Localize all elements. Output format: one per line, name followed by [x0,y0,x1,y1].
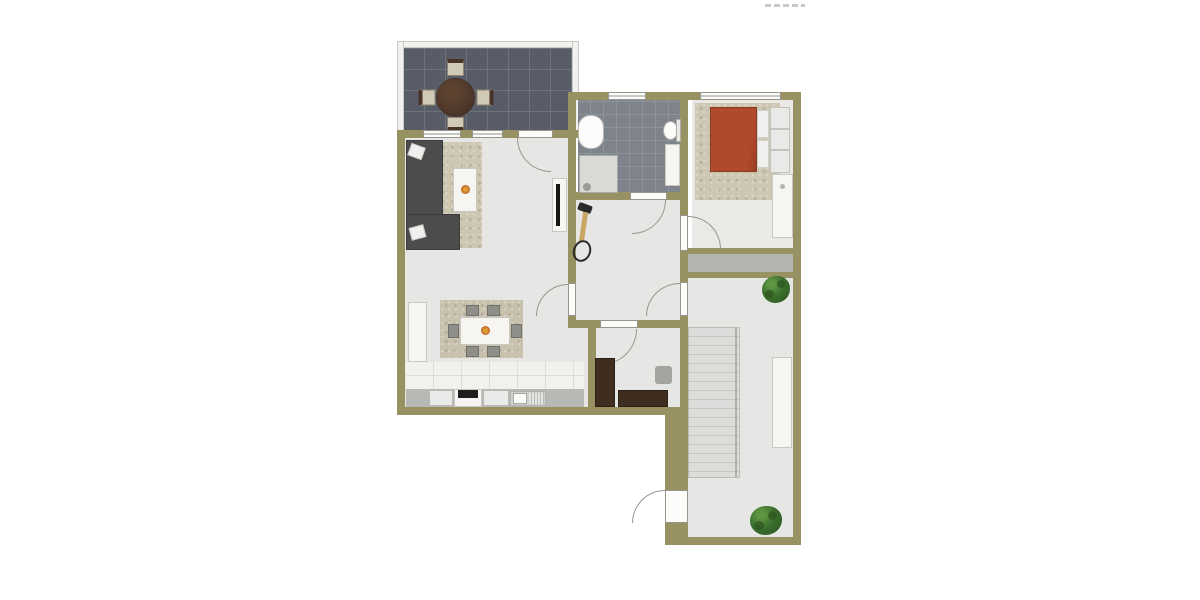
bedroom-door-frame [680,215,688,251]
kitchen-cabinet-front-1 [430,391,452,405]
study-sideboard [618,390,668,407]
wall-mid-vertical-c [680,316,688,415]
wall-stair-left-lower [665,523,688,537]
bicycle-frame [579,212,588,242]
staircase-rail [735,328,737,477]
cooktop-hob [458,390,478,398]
living-window-1 [423,130,461,138]
staircase [688,327,740,478]
study-wall-panel [655,366,672,384]
terrace-chair-bottom [447,117,464,131]
bed-pillow-2 [757,140,769,168]
terrace-chair-top [447,59,464,76]
kitchen-cabinet-front-2 [484,391,508,405]
wardrobe-knob [780,184,785,189]
bed-headboard [770,107,790,173]
hall-stair-door-frame [680,282,688,316]
shower-head-icon [583,183,591,191]
wall-left-outer [397,130,405,415]
toilet-tank [676,119,681,142]
watermark-text [765,4,805,7]
coffee-table-flowers [461,185,470,194]
sink-bowl [513,393,527,404]
bed-duvet [710,107,757,172]
wall-stair-left-upper [665,415,688,490]
terrace-chair-right [477,90,494,106]
study-door-frame [600,320,638,328]
bathroom-window [608,92,646,100]
sink-drainer [529,393,544,404]
bathroom-vanity [665,144,680,186]
fridge-cabinet [408,302,427,362]
wall-hall-study-left [568,320,600,328]
hall-radiator [772,357,792,448]
wall-bottom-outer [665,537,801,545]
bedroom-window [700,92,781,100]
study-cabinet-vertical [595,358,615,407]
bicycle-wheel [570,238,594,265]
terrace-railing-left [397,41,404,136]
dining-chair-3 [466,346,479,357]
living-window-2 [472,130,503,138]
floor-plan [0,0,1200,600]
wall-bottom-living [397,407,688,415]
wall-bath-bottom-left [568,192,630,200]
tv-icon [556,184,560,226]
dining-chair-2 [487,305,500,316]
terrace-table [436,78,475,117]
terrace-chair-left [419,90,436,106]
dining-chair-6 [511,324,522,338]
dining-chair-5 [448,324,459,338]
dining-table-flowers [481,326,490,335]
kitchen-tile-strip [406,362,584,390]
storage-strip-floor [688,254,793,272]
entry-door-frame [665,490,688,523]
dining-chair-1 [466,305,479,316]
living-hall-door-frame [568,283,576,316]
bicycle-icon [570,202,600,266]
dining-chair-4 [487,346,500,357]
wall-right-outer [793,92,801,545]
bed-pillow-1 [757,110,769,138]
bathtub [578,115,604,149]
bathroom-door-frame [630,192,667,200]
wall-mid-vertical-a [680,100,688,215]
entry-door-swing [632,490,665,523]
balcony-door-frame [518,130,553,138]
terrace-railing-top [397,41,579,48]
